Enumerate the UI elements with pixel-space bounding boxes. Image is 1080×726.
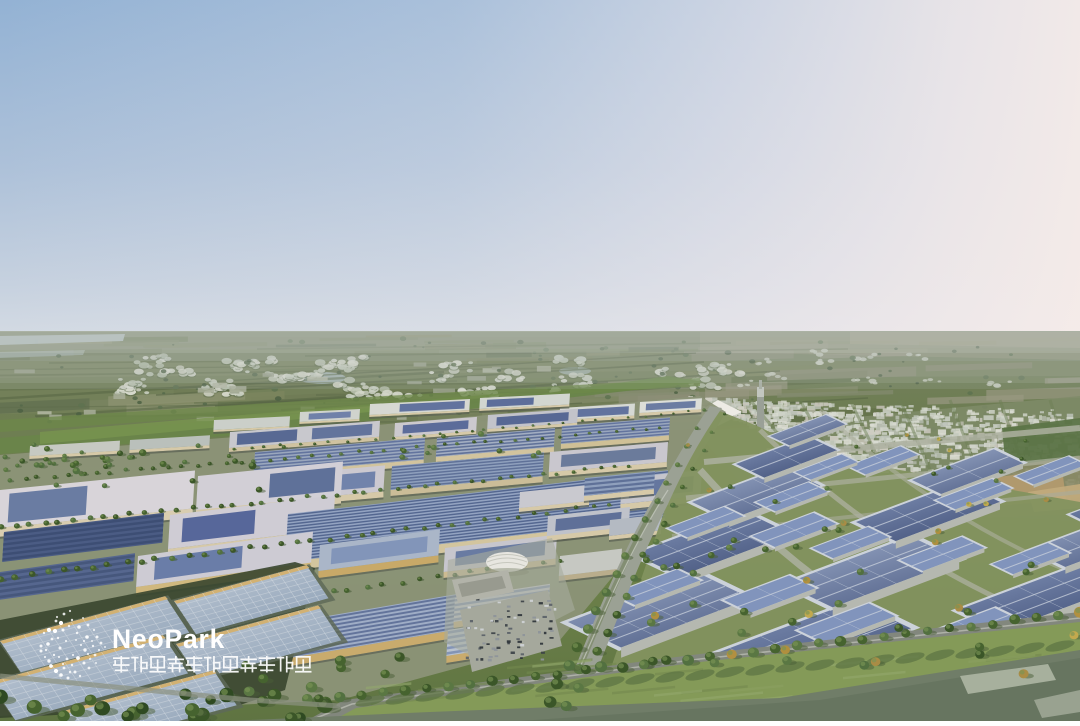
svg-text:NeoPark: NeoPark <box>112 624 225 654</box>
